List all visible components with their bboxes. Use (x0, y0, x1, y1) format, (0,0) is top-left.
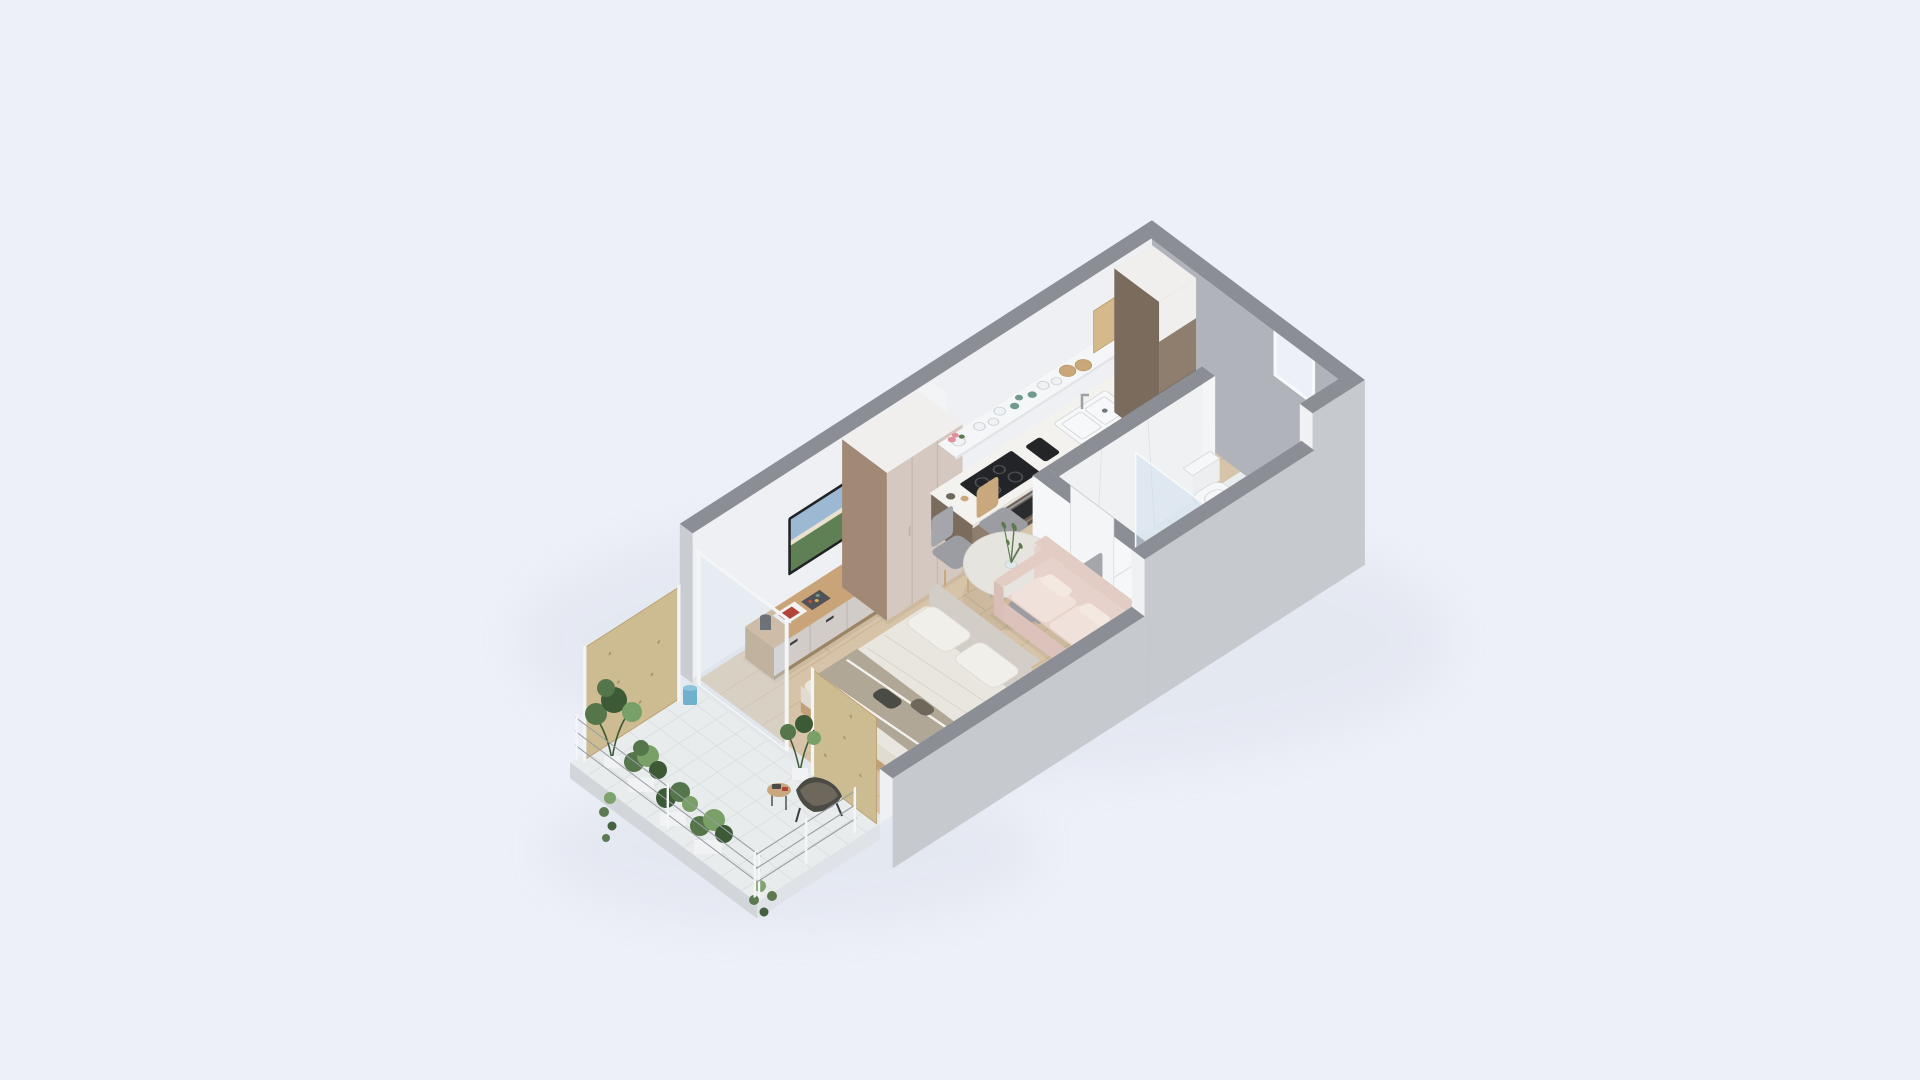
blue-pot (683, 685, 697, 705)
screenshot-canvas (0, 0, 1920, 1080)
back-wall-end-face (680, 524, 693, 684)
book (772, 784, 781, 789)
apartment-render (0, 0, 1920, 1080)
